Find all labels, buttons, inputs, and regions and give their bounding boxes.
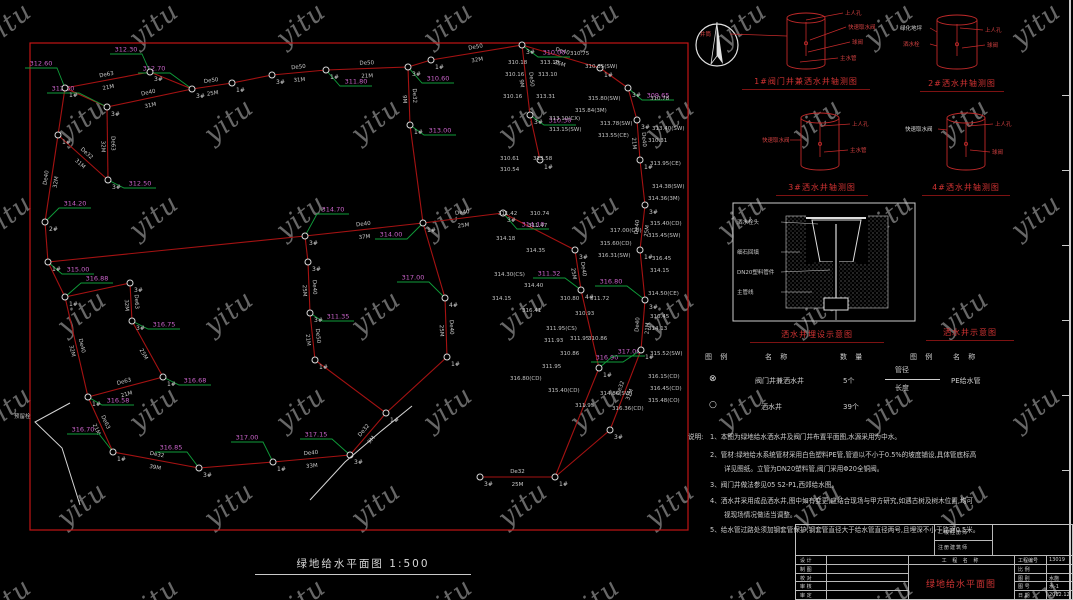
drawing-name: 绿地给水平面图	[908, 577, 1014, 590]
note-line: 2、管材:绿地给水系统管材采用白色塑料PE管,管道以不小于0.5%的坡度铺设,具…	[710, 449, 976, 463]
leader-line	[808, 42, 850, 52]
border-tick	[1062, 470, 1070, 471]
detail-drawings-canvas: 井筒上人孔快速取水阀球阀主水管绿化地坪洒水栓上人孔球阀快速取水阀上人孔主水管快速…	[0, 0, 1073, 600]
border-tick	[1062, 245, 1070, 246]
titleblock-line	[1014, 581, 1072, 582]
legend-header-name2: 名 称	[953, 352, 978, 362]
cad-sheet: yituyituyituyituyituyituyituyituyituyitu…	[0, 0, 1073, 600]
border-tick	[1062, 95, 1070, 96]
title-block: 二级注册师 注册建筑师 设 计工程编号13019制 图比 例校 对图 别水施审 …	[795, 524, 1073, 600]
pipe-fraction-line	[885, 379, 940, 380]
titleblock-line	[796, 564, 908, 565]
titleblock-line	[1014, 573, 1072, 574]
titleblock-line	[992, 525, 993, 555]
note-line: 4、洒水井采用成品洒水井,图中如有变更,应结合现场与甲方研究,如遇古树及树木位置…	[710, 495, 973, 509]
detail-part-label: 快速取水阀	[848, 23, 876, 31]
detail-part-label: 球阀	[992, 148, 1003, 156]
burial-detail: 洒水栓头细石回填DN20塑料管件主管线	[733, 203, 915, 321]
leader-line	[938, 129, 947, 130]
well-axonometric-detail: 绿化地坪洒水栓上人孔球阀	[900, 15, 1002, 69]
field-value: 13019	[1049, 557, 1065, 563]
detail-caption-3: 3#洒水井轴测图	[776, 182, 868, 196]
border-tick	[1062, 320, 1070, 321]
legend-table: 图 例 名 称 数 量 图 例 名 称 ⊗ 阀门井兼洒水井 5个 管径 长度 P…	[695, 348, 1067, 420]
legend-row-name: 洒水井	[761, 402, 782, 412]
detail-part-label: 主水管	[840, 54, 857, 62]
valve-well-icon: ⊗	[709, 374, 717, 384]
legend-row-name: 阀门井兼洒水井	[755, 376, 804, 386]
border-tick	[1062, 395, 1070, 396]
sheet-border-right	[1069, 0, 1071, 600]
main-pipe	[824, 298, 848, 310]
titleblock-line	[1014, 564, 1072, 565]
detail-part-label: 洒水栓	[903, 40, 920, 48]
leader-line	[962, 45, 985, 48]
leader-line	[968, 124, 993, 126]
detail-part-label: 绿化地坪	[900, 24, 923, 32]
leader-line	[824, 150, 848, 152]
detail-part-label: 主水管	[850, 146, 867, 154]
detail-part-label: 上人孔	[985, 26, 1002, 34]
plan-title: 绿地给水平面图 1:500	[255, 556, 471, 575]
cert-row-2: 注册建筑师	[938, 544, 968, 551]
leader-line	[970, 150, 990, 152]
titleblock-line	[1046, 555, 1047, 599]
pipe-length-label: 长度	[895, 383, 909, 393]
burial-caption: 洒水井埋设示意图	[750, 329, 884, 343]
burial-part-label: DN20塑料管件	[737, 268, 775, 276]
detail-part-label: 上人孔	[852, 120, 869, 128]
leader-line	[800, 58, 838, 62]
detail-part-label: 快速取水阀	[905, 125, 933, 133]
titleblock-line	[796, 573, 908, 574]
detail-caption-4: 4#洒水井轴测图	[922, 182, 1010, 196]
leader-line	[810, 27, 846, 40]
burial-part-label: 洒水栓头	[737, 218, 760, 226]
burial-part-label: 细石回填	[737, 248, 760, 256]
leader-line	[730, 34, 787, 36]
well-axonometric-detail: 井筒上人孔快速取水阀球阀主水管	[700, 9, 876, 69]
burial-part-label: 主管线	[737, 288, 754, 296]
detail-part-label: 球阀	[852, 38, 863, 46]
signature-row-label: 审 定	[800, 592, 812, 599]
titleblock-line	[908, 564, 1014, 565]
leader-line	[930, 28, 937, 32]
titleblock-line	[826, 555, 827, 599]
detail-part-label: 快速取水阀	[762, 136, 790, 144]
detail-caption-1: 1#阀门井兼洒水井轴测图	[742, 76, 870, 90]
note-line: 3、阀门井做法参见05 S2-P1,西郊给水图。	[710, 479, 838, 493]
legend-row-qty: 39个	[843, 402, 859, 412]
titleblock-line	[934, 540, 992, 541]
well-axonometric-detail: 快速取水阀上人孔主水管	[762, 113, 869, 170]
sprinkler-well-icon: ○	[709, 400, 717, 410]
schematic-caption: 洒水井示意图	[926, 327, 1014, 341]
border-tick	[1062, 170, 1070, 171]
detail-part-label: 球阀	[987, 41, 998, 49]
titleblock-line	[796, 555, 1072, 556]
field-label: 日 期	[1018, 592, 1030, 599]
cert-row-1: 二级注册师	[938, 529, 968, 536]
leader-line	[930, 44, 937, 46]
detail-part-label: 井筒	[700, 30, 712, 38]
detail-part-label: 上人孔	[995, 120, 1012, 128]
legend-row-qty: 5个	[843, 376, 854, 386]
field-value: 2012.12	[1049, 592, 1070, 598]
legend-header-symbol: 图 例	[705, 352, 730, 362]
detail-part-label: 上人孔	[845, 9, 862, 17]
pipe-name-label: PE给水管	[951, 376, 981, 386]
note-line: 1、本图为绿地给水洒水井及阀门井布置平面图,水源采用为中水。	[710, 431, 901, 445]
legend-header-symbol2: 图 例	[910, 352, 935, 362]
titleblock-line	[796, 590, 908, 591]
titleblock-line	[1014, 590, 1072, 591]
well-axonometric-detail: 快速取水阀上人孔球阀	[905, 113, 1012, 170]
leader-line	[960, 28, 983, 30]
legend-header-qty: 数 量	[840, 352, 865, 362]
legend-header-name: 名 称	[765, 352, 790, 362]
project-name-label: 工 程 名 称	[908, 557, 1014, 564]
notes-title: 说明:	[688, 431, 703, 445]
titleblock-line	[796, 581, 908, 582]
note-line: 视现场情况做适当调整。	[724, 509, 797, 523]
pipe-diameter-label: 管径	[895, 365, 909, 375]
detail-caption-2: 2#洒水井轴测图	[920, 78, 1004, 92]
note-line: 详见图纸。立管为DN20塑料管,阀门采用Φ20全铜阀。	[724, 463, 883, 477]
leader-line	[822, 124, 850, 126]
titleblock-line	[1014, 555, 1015, 599]
